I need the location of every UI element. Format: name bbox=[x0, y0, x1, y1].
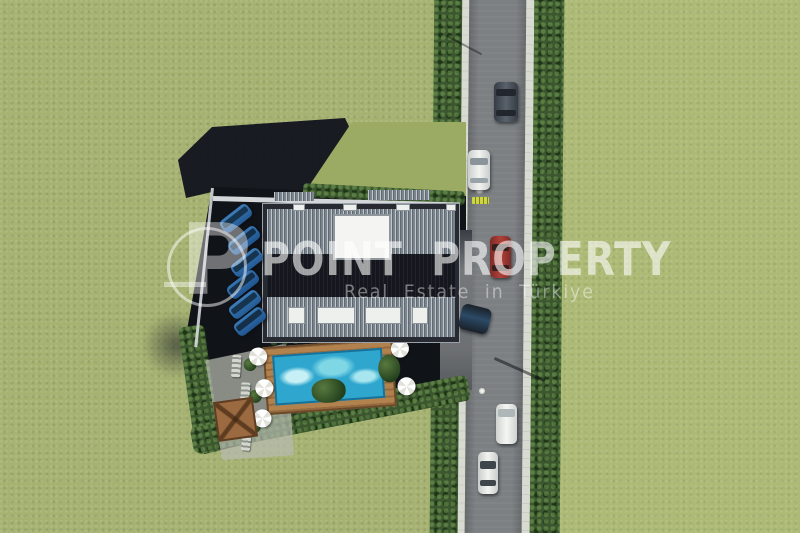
balcony bbox=[317, 307, 355, 324]
grass-field-east bbox=[558, 0, 800, 533]
building bbox=[262, 203, 460, 343]
roadside-hedge-west-north bbox=[433, 0, 463, 200]
road-van-white bbox=[496, 404, 517, 444]
road-car-dark bbox=[494, 82, 518, 122]
sun-lounger bbox=[231, 355, 242, 378]
watermark-logo-bar bbox=[164, 282, 206, 287]
aerial-render: P POINT PROPERTY Real Estate in Türkiye bbox=[0, 0, 800, 533]
balcony bbox=[412, 307, 428, 324]
roof-skylight bbox=[333, 214, 391, 260]
road-marking bbox=[472, 197, 489, 204]
balcony bbox=[288, 307, 305, 324]
courtyard bbox=[267, 254, 455, 297]
pergola bbox=[213, 397, 258, 442]
road-car-white-south bbox=[478, 452, 498, 494]
pool-terrace bbox=[204, 325, 417, 467]
road-car-red bbox=[490, 236, 511, 278]
roof-detail bbox=[293, 204, 305, 211]
roadside-hedge-west-south bbox=[430, 389, 459, 533]
roof-detail bbox=[343, 204, 357, 211]
street-lamp bbox=[479, 388, 485, 394]
road-car-white-north bbox=[468, 150, 490, 190]
plot-wall-west bbox=[194, 188, 214, 347]
roadside-hedge-east bbox=[530, 0, 565, 533]
roof-detail bbox=[396, 204, 410, 211]
balcony bbox=[365, 307, 401, 324]
roof-detail bbox=[446, 204, 456, 211]
